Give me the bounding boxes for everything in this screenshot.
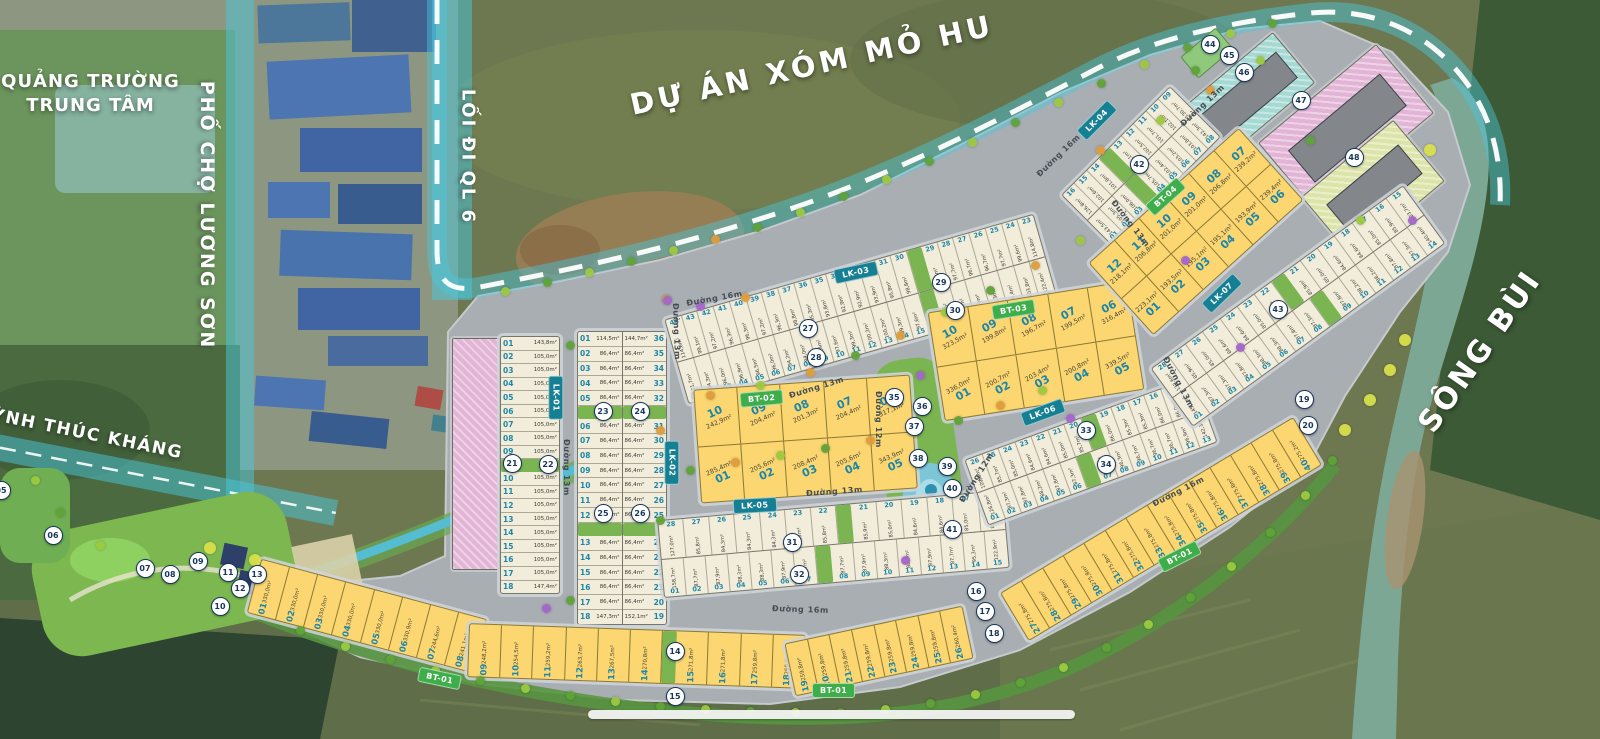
masterplan-map: 01143,8m²02105,0m²03105,0m²04105,0m²0510… bbox=[0, 0, 1600, 739]
ui-layer bbox=[0, 0, 1600, 739]
progress-bar[interactable] bbox=[588, 710, 1075, 719]
